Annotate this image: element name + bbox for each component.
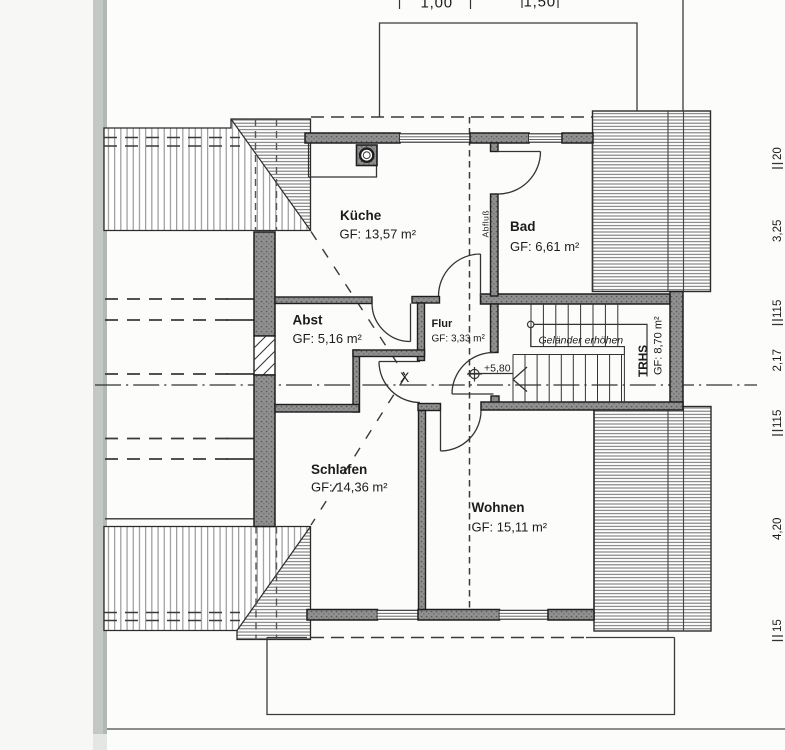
svg-text:Wohnen: Wohnen xyxy=(472,500,525,515)
svg-text:GF: 5,16 m²: GF: 5,16 m² xyxy=(293,331,363,346)
svg-text:+5,80: +5,80 xyxy=(484,363,511,375)
svg-text:X: X xyxy=(400,369,410,385)
svg-text:GF: 15,11 m²: GF: 15,11 m² xyxy=(472,520,548,535)
svg-text:15: 15 xyxy=(772,619,784,632)
svg-text:Abst: Abst xyxy=(293,313,324,328)
svg-text:115: 115 xyxy=(772,300,784,318)
svg-text:Bad: Bad xyxy=(510,219,536,234)
svg-text:Schlafen: Schlafen xyxy=(311,462,367,477)
svg-text:2,17: 2,17 xyxy=(772,349,784,371)
svg-text:TRHS: TRHS xyxy=(636,345,650,377)
svg-text:GF: 13,57 m²: GF: 13,57 m² xyxy=(340,227,417,242)
svg-text:Küche: Küche xyxy=(340,208,382,223)
svg-text:GF: 8,70 m²: GF: 8,70 m² xyxy=(653,316,665,375)
svg-text:Flur: Flur xyxy=(432,318,453,330)
svg-text:20: 20 xyxy=(772,147,784,160)
svg-text:Geländer erhöhen: Geländer erhöhen xyxy=(539,335,624,347)
svg-text:Abfluß: Abfluß xyxy=(481,210,491,238)
svg-text:4,20: 4,20 xyxy=(772,518,784,540)
svg-text:GF: 3,33 m²: GF: 3,33 m² xyxy=(432,334,486,345)
svg-text:GF: 14,36 m²: GF: 14,36 m² xyxy=(311,480,388,495)
svg-text:115: 115 xyxy=(772,410,784,428)
svg-text:1,50: 1,50 xyxy=(524,0,556,11)
svg-text:1,00: 1,00 xyxy=(421,0,453,12)
svg-text:GF: 6,61 m²: GF: 6,61 m² xyxy=(510,239,580,254)
svg-text:3,25: 3,25 xyxy=(772,220,784,242)
